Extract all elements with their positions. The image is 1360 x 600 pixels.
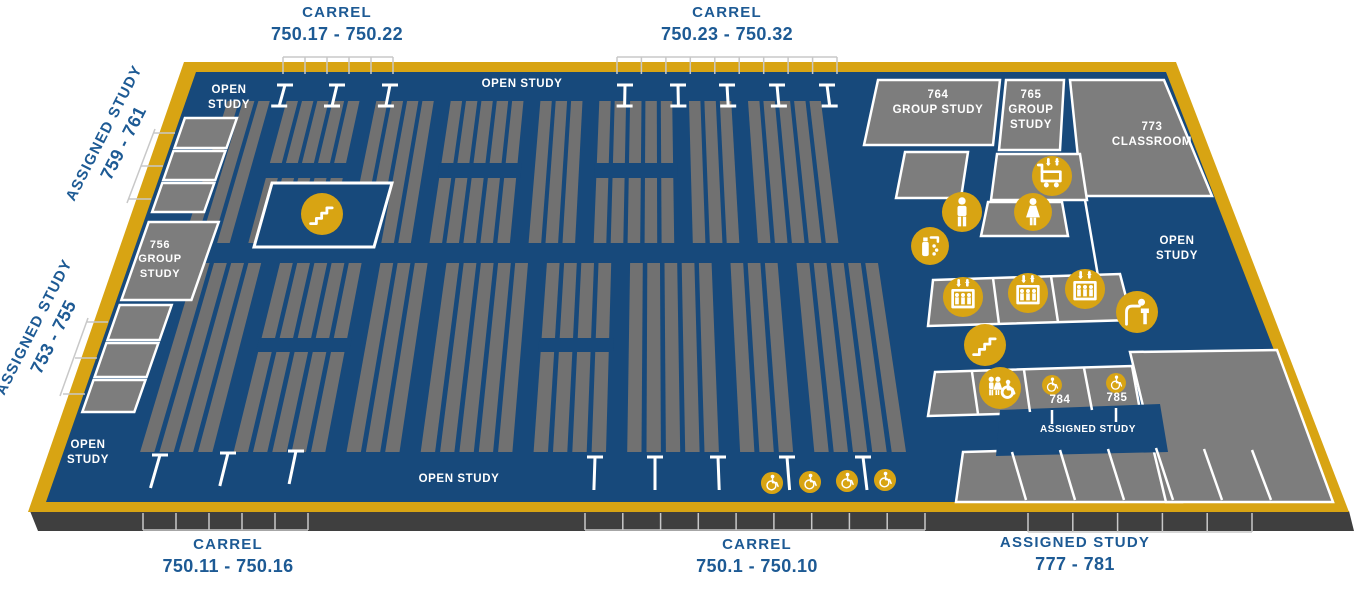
- bottle-filling-station-icon: [911, 227, 949, 265]
- stack-aisle-gap: [256, 338, 352, 352]
- assigned-study-room: [152, 183, 214, 212]
- accessible-carrel-icon: [836, 470, 858, 492]
- family-accessible-restroom-icon: [979, 367, 1021, 409]
- assigned-study-room: [95, 343, 159, 377]
- book-cart-icon: [1032, 156, 1072, 196]
- stairs-icon: [964, 324, 1006, 366]
- assigned-study-band-area: [996, 404, 1168, 456]
- stack-aisle-gap: [594, 163, 677, 178]
- stack-aisle-gap: [538, 338, 614, 352]
- assigned-study-room: [163, 151, 225, 180]
- service-room-a: [896, 152, 968, 198]
- assigned-study-room: [175, 118, 237, 148]
- stack-aisle-gap: [437, 163, 522, 178]
- elevator-icon: [1008, 273, 1048, 313]
- accessible-carrel-icon: [799, 471, 821, 493]
- floor-plan-canvas: [0, 0, 1360, 600]
- room-764-group-study: [864, 80, 1000, 145]
- library-floor-map: CARREL 750.17 - 750.22 CARREL 750.23 - 7…: [0, 0, 1360, 600]
- mens-restroom-icon: [942, 192, 982, 232]
- floor-3d-edge: [30, 511, 1354, 531]
- shelf-range: [647, 263, 661, 452]
- womens-restroom-icon: [1014, 193, 1052, 231]
- accessible-carrel-icon: [874, 469, 896, 491]
- assigned-study-room: [108, 305, 172, 340]
- elevator-icon: [943, 277, 983, 317]
- room-765-group-study: [999, 80, 1064, 150]
- accessible-room-785-icon: [1106, 373, 1126, 393]
- accessible-carrel-icon: [761, 472, 783, 494]
- accessible-room-784-icon: [1042, 375, 1062, 395]
- rooms-777-781: [956, 446, 1182, 502]
- stack-aisle-gap: [264, 163, 351, 178]
- elevator-icon: [1065, 269, 1105, 309]
- assigned-study-room: [82, 380, 145, 412]
- stairs-icon: [301, 193, 343, 235]
- drinking-fountain-icon: [1116, 291, 1158, 333]
